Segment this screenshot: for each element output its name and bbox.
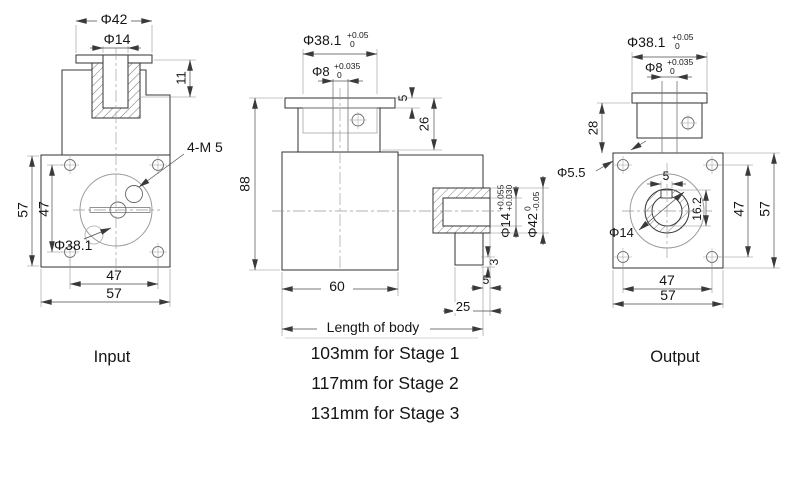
output-view-label: Output (650, 348, 700, 366)
dim-phi381-body: Φ38.1 (303, 32, 342, 48)
dim-162-keyway: 16.2 (690, 197, 704, 221)
dim-phi8-body: Φ8 (312, 64, 330, 79)
output-bore (443, 198, 490, 226)
dim-57-bottom-input: 57 (106, 285, 122, 301)
output-boss-flange (632, 93, 707, 103)
dim-88-height: 88 (237, 176, 253, 192)
dim-5-gap: 5 (483, 273, 490, 287)
input-view-label: Input (94, 348, 131, 366)
dim-28-boss: 28 (585, 121, 600, 135)
input-boss-body (298, 108, 380, 152)
input-view: Φ42 Φ14 11 4-M 5 Φ38.1 57 47 47 57 Input (15, 11, 223, 366)
dim-phi42-body: Φ42 (525, 213, 540, 238)
dim-phi14-output: Φ14 (609, 225, 634, 240)
dim-47-bottom-output: 47 (659, 272, 675, 288)
tol-phi42-dn: -0.05 (531, 191, 541, 211)
tol-phi381-dn: 0 (350, 39, 355, 49)
dim-phi55-hole: Φ5.5 (557, 165, 585, 180)
stage3-length-note: 131mm for Stage 3 (311, 403, 460, 423)
dim-47-right-output: 47 (731, 201, 747, 217)
engineering-drawing-page: Φ42 Φ14 11 4-M 5 Φ38.1 57 47 47 57 Input (0, 0, 800, 496)
dim-5-keyway: 5 (663, 169, 670, 183)
dim-60-width: 60 (329, 278, 345, 294)
dim-4m5-label: 4-M 5 (187, 139, 223, 155)
output-view: Φ38.1 +0.05 0 Φ8 +0.035 0 28 Φ5.5 5 16.2… (557, 32, 780, 366)
tol-phi14-dn: +0.030 (504, 184, 514, 211)
body-view: Φ38.1 +0.05 0 Φ8 +0.035 0 5 26 88 60 Φ14… (237, 30, 549, 423)
dim-11-input: 11 (173, 71, 188, 85)
gearbox-drawing-canvas: Φ42 Φ14 11 4-M 5 Φ38.1 57 47 47 57 Input (0, 0, 800, 496)
dim-26-boss: 26 (416, 117, 431, 131)
dim-57-left-input: 57 (15, 202, 31, 218)
dim-phi14-input: Φ14 (104, 31, 131, 47)
tol-phi8-dn-out: 0 (670, 66, 675, 76)
dim-phi14-body: Φ14 (498, 213, 513, 238)
tol-phi381-dn-out: 0 (675, 41, 680, 51)
dim-phi381-output: Φ38.1 (627, 34, 666, 50)
dim-length-of-body: Length of body (327, 319, 420, 335)
dim-47-left-input: 47 (36, 201, 52, 217)
dim-25-shaft: 25 (456, 299, 470, 314)
dim-5-flange: 5 (396, 94, 410, 101)
output-boss-body (637, 103, 702, 138)
stage1-length-note: 103mm for Stage 1 (311, 343, 460, 363)
tol-phi8-dn: 0 (337, 70, 342, 80)
dim-47-bottom-input: 47 (106, 267, 122, 283)
output-keyway (661, 190, 672, 198)
dim-57-right-output: 57 (757, 201, 773, 217)
dim-phi8-output: Φ8 (645, 60, 663, 75)
dim-57-bottom-output: 57 (660, 287, 676, 303)
input-bore (103, 55, 128, 108)
dim-3-step: 3 (487, 258, 501, 265)
stage2-length-note: 117mm for Stage 2 (311, 373, 459, 393)
dim-phi42-input: Φ42 (101, 11, 128, 27)
dim-phi381-input: Φ38.1 (54, 237, 93, 253)
